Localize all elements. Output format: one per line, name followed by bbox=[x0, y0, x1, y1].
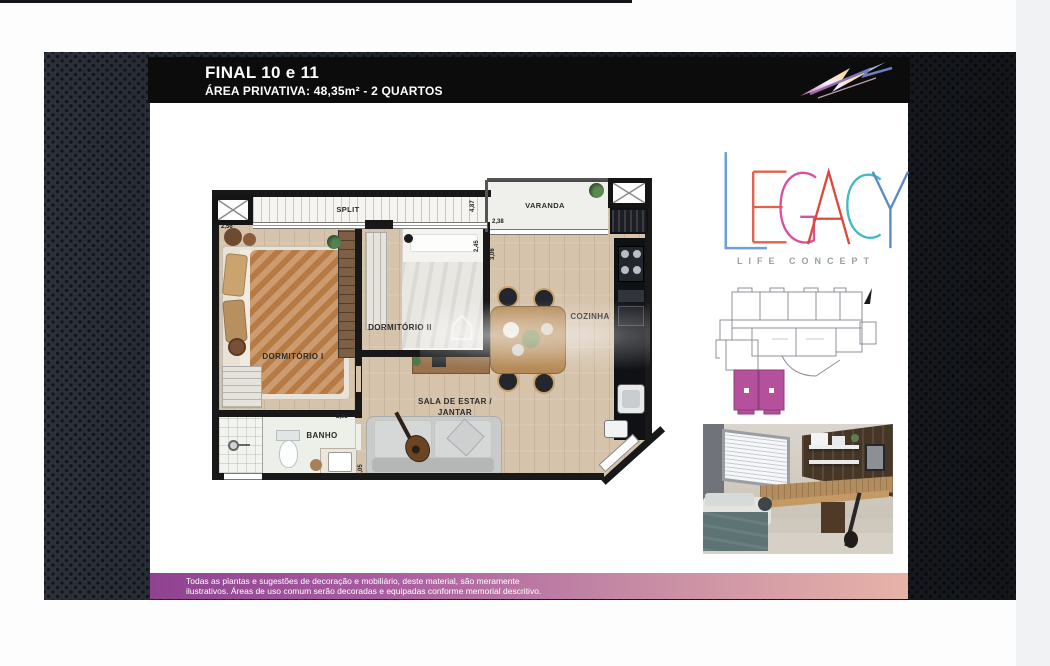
shaft-top-left bbox=[213, 195, 253, 225]
label-split: SPLIT bbox=[308, 205, 388, 214]
sideboard bbox=[412, 354, 490, 374]
photo-box bbox=[832, 436, 845, 445]
duct-block bbox=[610, 208, 648, 234]
label-cozinha: COZINHA bbox=[550, 312, 630, 321]
x-mark-icon bbox=[218, 200, 248, 220]
kitchen-sink-basin bbox=[622, 390, 640, 408]
dim-label: 2,45 bbox=[474, 240, 480, 252]
toilet-bowl bbox=[279, 440, 298, 468]
dim-label: 2,56 bbox=[221, 224, 233, 230]
pouf bbox=[224, 228, 242, 246]
shaft-top-right bbox=[608, 178, 650, 208]
bed-dorm1-duvet bbox=[250, 250, 344, 394]
key-plan bbox=[712, 282, 878, 416]
pillow bbox=[410, 234, 478, 252]
photo-chair bbox=[758, 497, 772, 511]
dim-label: 3,06 bbox=[490, 248, 496, 260]
pillow bbox=[222, 299, 248, 343]
plant bbox=[589, 183, 604, 198]
wall-bottom bbox=[212, 473, 604, 480]
photo-shelf bbox=[809, 445, 858, 449]
wall-top bbox=[212, 190, 491, 197]
dim-label: 4,87 bbox=[470, 200, 476, 212]
pillow bbox=[222, 253, 248, 297]
wall-left bbox=[212, 190, 219, 480]
top-edge-line bbox=[0, 0, 632, 3]
sideboard-item bbox=[432, 357, 446, 367]
page-right-margin bbox=[1016, 0, 1050, 666]
wall-post bbox=[365, 220, 393, 229]
pouf bbox=[243, 233, 256, 246]
plate bbox=[541, 323, 553, 335]
unit-title: FINAL 10 e 11 bbox=[205, 63, 319, 83]
plate bbox=[512, 344, 524, 356]
letter-C bbox=[847, 175, 880, 238]
dresser-dorm1 bbox=[222, 366, 262, 408]
label-dormitorio2: DORMITÓRIO II bbox=[340, 323, 460, 332]
photo-guitar-body bbox=[844, 531, 858, 548]
interior-photo bbox=[703, 424, 893, 554]
keyplan-top-band bbox=[732, 292, 862, 320]
varanda-rail bbox=[490, 229, 608, 235]
swoosh-logo-icon bbox=[788, 60, 903, 100]
label-banho: BANHO bbox=[282, 431, 362, 440]
plate bbox=[522, 330, 540, 348]
unit-subtitle: ÁREA PRIVATIVA: 48,35m² - 2 QUARTOS bbox=[205, 84, 443, 98]
burner bbox=[621, 266, 629, 274]
disclaimer-line2: ilustrativos. Áreas de uso comum serão d… bbox=[186, 586, 908, 596]
bed-dorm2-blanket bbox=[402, 262, 486, 348]
wall-dorm2-bottom bbox=[362, 350, 490, 357]
wardrobe-dorm2 bbox=[365, 232, 387, 330]
dorm1-door-gap bbox=[356, 366, 361, 392]
legacy-logo bbox=[714, 148, 910, 266]
laundry-tub bbox=[604, 420, 628, 438]
shower-arm bbox=[238, 444, 250, 446]
burner bbox=[633, 250, 641, 258]
keyplan-corridor bbox=[732, 320, 862, 328]
letter-L bbox=[726, 152, 767, 248]
sink bbox=[328, 452, 352, 472]
north-arrow-icon bbox=[864, 288, 872, 304]
photo-box bbox=[811, 433, 828, 445]
wall-dorm2-right bbox=[483, 222, 490, 357]
x-mark-icon bbox=[613, 183, 645, 203]
dim-label: 4,05 bbox=[358, 464, 364, 476]
stool bbox=[310, 459, 322, 471]
wardrobe-dorm1 bbox=[338, 230, 356, 358]
brand-tagline: LIFE CONCEPT bbox=[726, 256, 886, 266]
label-sala-line1: SALA DE ESTAR / bbox=[395, 397, 515, 406]
burner bbox=[633, 266, 641, 274]
photo-pillows bbox=[705, 493, 754, 506]
burner bbox=[621, 250, 629, 258]
photo-shelf bbox=[809, 460, 858, 464]
dim-label: 2,38 bbox=[492, 219, 504, 225]
varanda-outline-top bbox=[487, 178, 608, 180]
disclaimer-bar: Todas as plantas e sugestões de decoraçã… bbox=[150, 573, 908, 599]
header-bar: FINAL 10 e 11 ÁREA PRIVATIVA: 48,35m² - … bbox=[148, 57, 910, 103]
photo-frame bbox=[865, 444, 886, 471]
label-varanda: VARANDA bbox=[505, 201, 585, 210]
label-sala-line2: JANTAR bbox=[395, 408, 515, 417]
plant bbox=[327, 235, 341, 249]
counter-utensils bbox=[618, 290, 644, 302]
photo-blanket bbox=[703, 512, 768, 551]
plant bbox=[412, 357, 421, 366]
reading-lamp bbox=[404, 234, 413, 243]
label-dormitorio1: DORMITÓRIO I bbox=[233, 352, 353, 361]
plate bbox=[503, 322, 519, 338]
disclaimer-line1: Todas as plantas e sugestões de decoraçã… bbox=[186, 576, 908, 586]
shower-glass bbox=[262, 417, 263, 473]
chair bbox=[533, 372, 555, 394]
photo-window bbox=[722, 429, 790, 489]
dim-label: 2,95 bbox=[336, 414, 348, 420]
chair bbox=[497, 286, 519, 308]
banho-window bbox=[224, 473, 262, 480]
